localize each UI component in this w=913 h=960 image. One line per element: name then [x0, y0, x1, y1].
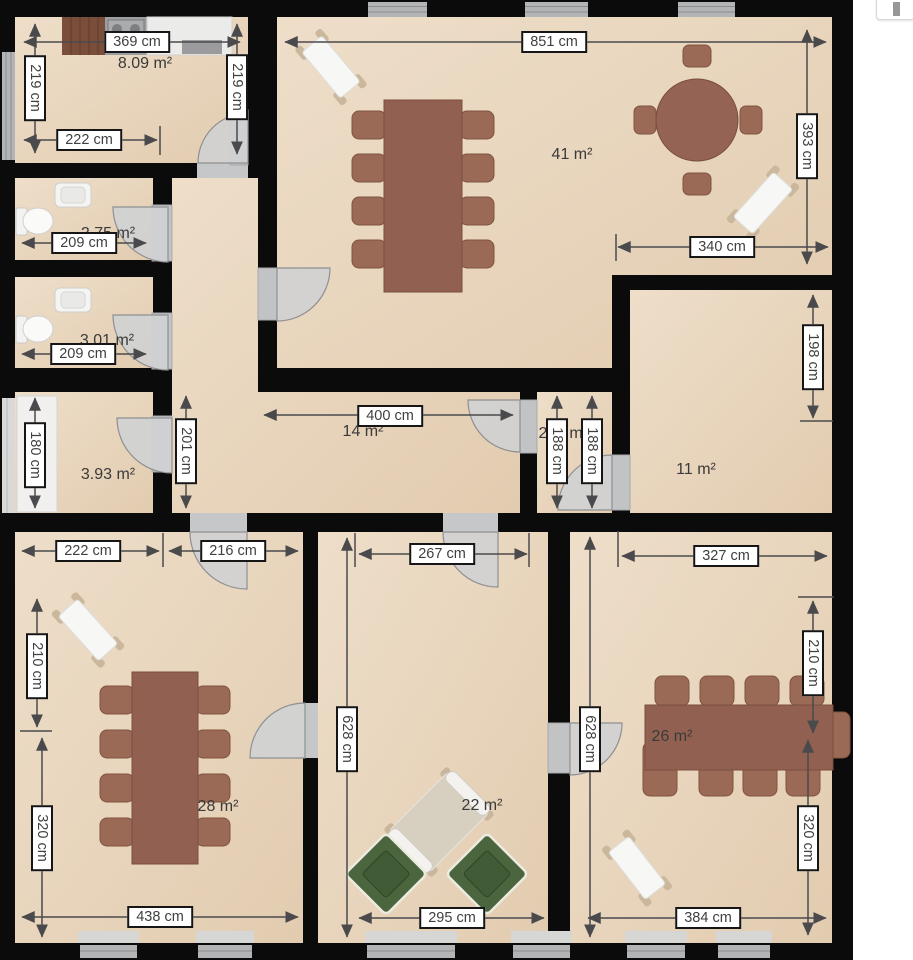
floorplan-canvas — [0, 0, 913, 960]
kitchen-counter — [62, 17, 232, 55]
vertical-bar-icon — [893, 2, 900, 16]
door-leaf — [520, 400, 537, 453]
sink-icon — [55, 288, 91, 312]
sink-icon — [55, 183, 91, 207]
door-gap — [190, 513, 247, 532]
door-gap — [443, 513, 498, 532]
toilet-icon — [16, 208, 53, 235]
storage-counter — [17, 396, 57, 512]
window-top-3 — [678, 2, 735, 17]
window-top-2 — [525, 2, 588, 17]
door-leaf — [610, 455, 630, 510]
toilet-icon — [16, 316, 53, 343]
floor-room-11 — [630, 290, 832, 513]
partial-toolbar-button[interactable] — [876, 0, 913, 20]
door-leaf — [548, 723, 570, 773]
door-leaf — [258, 268, 277, 320]
window-left-kitchen — [2, 52, 15, 160]
window-top-1 — [368, 2, 427, 17]
floorplan-viewer: 8.09 m² 41 m² 2.75 m² 3.01 m² 3.93 m² 14… — [0, 0, 913, 960]
dining-table-bottomright — [643, 676, 850, 796]
stove-icon — [105, 17, 147, 55]
window-left-storage — [2, 398, 15, 513]
